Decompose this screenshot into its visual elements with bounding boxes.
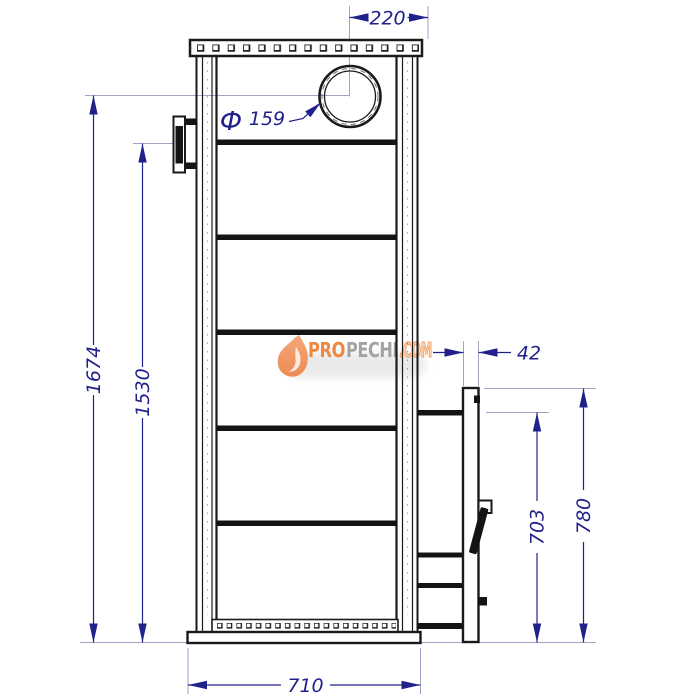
door-panel [463,388,479,642]
baffle-shelves [217,140,398,527]
firebox-door [463,388,492,642]
dimension-label-42: 42 [517,343,541,365]
dimension-height-1530: 1530 [132,144,154,643]
dimension-label-1530: 1530 [132,368,154,416]
baffle-line [217,140,398,146]
dimension-height-703: 703 [527,413,549,643]
flame-icon [278,335,308,377]
baffle-line [217,235,398,241]
dimension-door-42: 42 [433,343,541,365]
mounting-bracket [174,117,197,173]
drawing-canvas: PRO PECHI .COM [0,0,700,700]
baffle-line [217,330,398,336]
diameter-symbol: Ф [220,107,242,137]
dimension-label-1674: 1674 [83,346,105,394]
watermark: PRO PECHI .COM [278,335,432,378]
watermark-text-pechi: PECHI [346,338,398,362]
dimension-chimney-diameter: Ф 159 [220,103,321,137]
stove-technical-drawing: PRO PECHI .COM [0,0,700,700]
bolt-strip-bottom [214,621,396,631]
baffle-line [217,426,398,432]
top-plate [190,40,422,56]
baffle-line [217,521,398,527]
dimension-height-1674: 1674 [83,96,105,643]
door-latch [478,597,488,606]
dimension-label-703: 703 [527,509,549,545]
watermark-text-pro: PRO [308,338,345,362]
dimension-width-220: 220 [350,8,429,30]
dimension-label-159: 159 [249,108,285,130]
dimension-width-710: 710 [188,675,421,697]
firebox-tunnel [418,410,464,629]
base-assembly [188,620,421,644]
dimension-label-780: 780 [573,498,595,534]
dimension-label-220: 220 [369,8,405,30]
base-plate [188,632,421,643]
dimension-height-780: 780 [573,389,595,643]
watermark-text-com: .COM [399,338,432,362]
bolt-strip-top [193,42,419,54]
door-hinge-pin [474,396,480,404]
dimension-label-710: 710 [287,675,323,697]
